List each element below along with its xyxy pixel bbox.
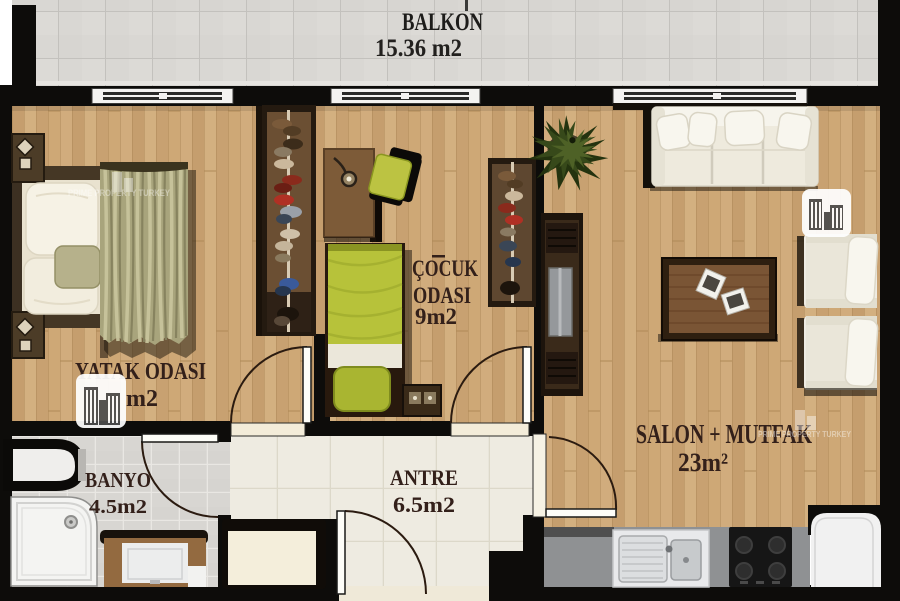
svg-text:PRIME PROPERTY TURKEY: PRIME PROPERTY TURKEY [758,429,851,439]
svg-text:BALKON: BALKON [402,9,483,36]
svg-text:15.36 m2: 15.36 m2 [375,35,462,62]
svg-text:ANTRE: ANTRE [390,465,458,490]
svg-text:ÇOCUK: ÇOCUK [412,256,478,281]
svg-text:4.5m2: 4.5m2 [89,496,147,518]
svg-text:6.5m2: 6.5m2 [393,492,455,517]
svg-text:23m²: 23m² [678,448,728,477]
svg-text:m2: m2 [126,386,158,412]
svg-text:PRIME PROPERTY TURKEY: PRIME PROPERTY TURKEY [68,188,170,198]
svg-text:9m2: 9m2 [415,304,457,329]
svg-text:BANYO: BANYO [85,468,151,492]
